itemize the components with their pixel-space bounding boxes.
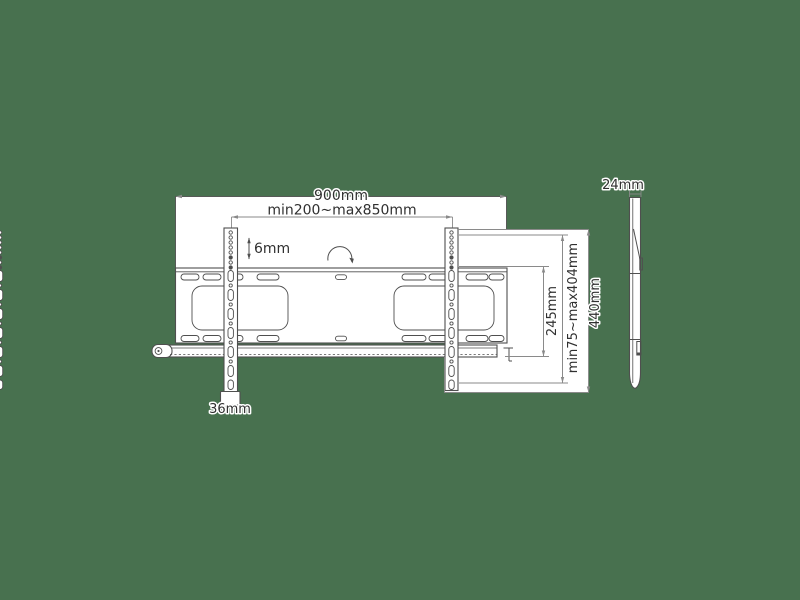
bracket-spacing-label: min200~max850mm (267, 203, 416, 219)
rail-hole-pattern (0, 231, 3, 390)
dimension-drawing: 900mm min200~max850mm 6mm 245mm (0, 0, 800, 600)
rail-profile (630, 198, 641, 389)
mounting-rail-right (445, 228, 458, 391)
hole-pitch-label: 6mm (254, 241, 290, 257)
plate-height-label: 245mm (545, 286, 560, 336)
side-view: 24mm (602, 178, 644, 389)
bracket-width-label: 36mm (209, 402, 251, 417)
dim-bracket-width: 36mm (209, 402, 251, 417)
bracket-height-label: 440mm (588, 278, 603, 328)
dim-bracket-height: 440mm (587, 230, 603, 393)
front-view: 900mm min200~max850mm 6mm 245mm (0, 188, 603, 417)
vesa-height-label: min75~max404mm (566, 243, 581, 373)
dim-hole-pitch: 6mm (247, 238, 290, 260)
dim-profile-depth: 24mm (602, 178, 644, 197)
profile-depth-label: 24mm (602, 178, 644, 193)
